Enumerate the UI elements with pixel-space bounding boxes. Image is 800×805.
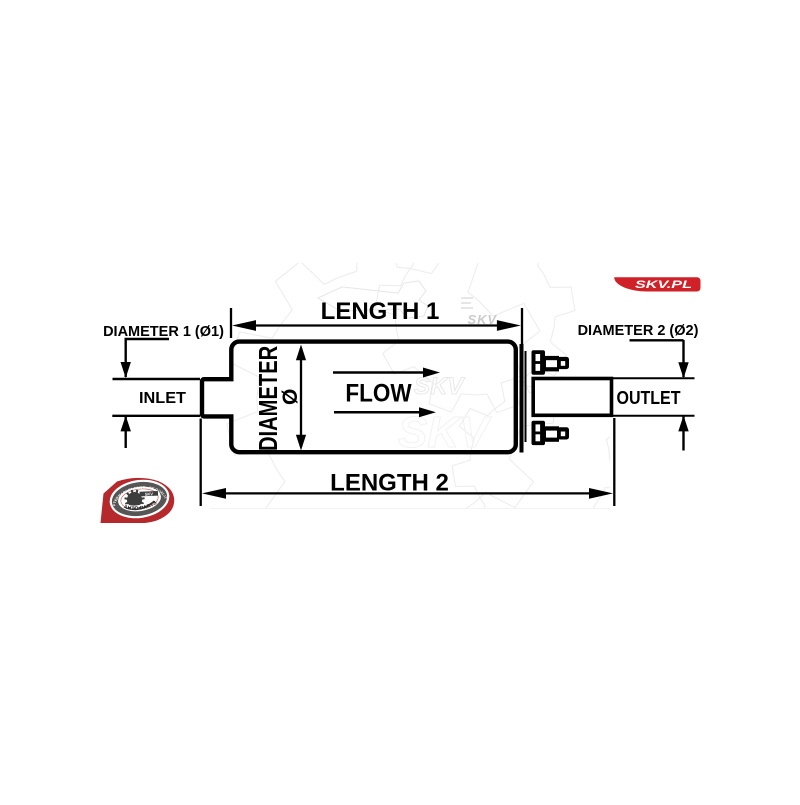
svg-text:OUTLET: OUTLET bbox=[617, 387, 681, 408]
svg-text:Ø: Ø bbox=[279, 389, 302, 405]
svg-text:DIAMETER 1 (Ø1): DIAMETER 1 (Ø1) bbox=[103, 324, 224, 340]
svg-text:SKV.PL: SKV.PL bbox=[635, 277, 692, 290]
svg-text:SKV: SKV bbox=[414, 373, 465, 400]
svg-text:DIAMETER 2 (Ø2): DIAMETER 2 (Ø2) bbox=[578, 323, 699, 339]
svg-text:SKV: SKV bbox=[145, 491, 154, 496]
svg-text:SKV: SKV bbox=[398, 408, 492, 457]
svg-text:INLET: INLET bbox=[139, 390, 186, 407]
svg-text:LENGTH 2: LENGTH 2 bbox=[330, 470, 449, 497]
svg-text:LENGTH 1: LENGTH 1 bbox=[321, 298, 440, 325]
svg-text:FLOW: FLOW bbox=[345, 379, 412, 408]
